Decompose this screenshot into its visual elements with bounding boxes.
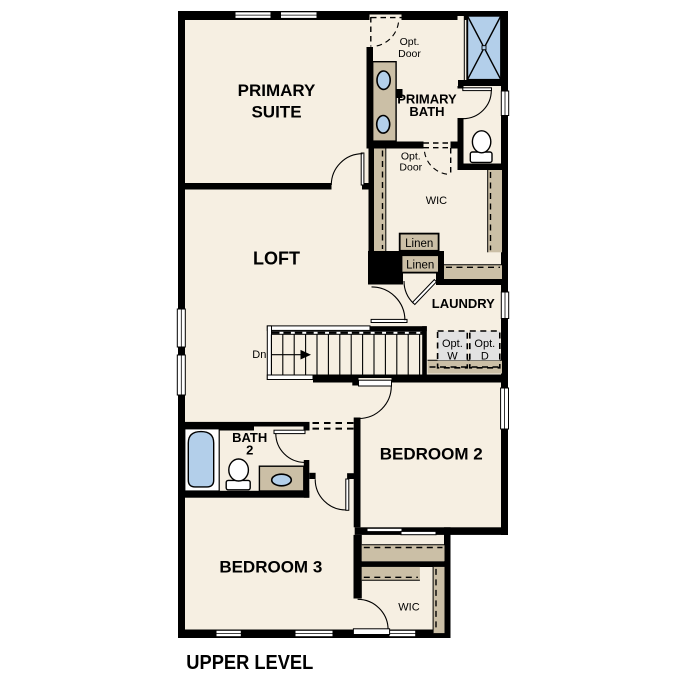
svg-text:W: W <box>447 351 458 363</box>
svg-text:D: D <box>481 351 489 363</box>
svg-text:UPPER LEVEL: UPPER LEVEL <box>186 652 313 674</box>
svg-text:PRIMARY: PRIMARY <box>238 81 316 100</box>
svg-text:BATH: BATH <box>409 104 444 119</box>
svg-text:LOFT: LOFT <box>253 249 300 269</box>
svg-text:2: 2 <box>246 443 253 458</box>
svg-text:SUITE: SUITE <box>251 102 301 121</box>
svg-text:Door: Door <box>399 161 422 173</box>
svg-text:Door: Door <box>398 48 421 60</box>
svg-text:Linen: Linen <box>406 260 434 272</box>
svg-text:BEDROOM 3: BEDROOM 3 <box>219 558 322 577</box>
svg-text:Opt.: Opt. <box>474 338 495 350</box>
svg-text:Opt.: Opt. <box>442 338 463 350</box>
svg-text:Linen: Linen <box>405 238 433 250</box>
svg-text:LAUNDRY: LAUNDRY <box>432 296 495 311</box>
svg-text:BEDROOM 2: BEDROOM 2 <box>380 444 483 463</box>
svg-text:WIC: WIC <box>426 195 447 207</box>
svg-text:Opt.: Opt. <box>400 36 420 48</box>
svg-text:WIC: WIC <box>398 601 419 613</box>
svg-text:Dn: Dn <box>252 349 266 361</box>
